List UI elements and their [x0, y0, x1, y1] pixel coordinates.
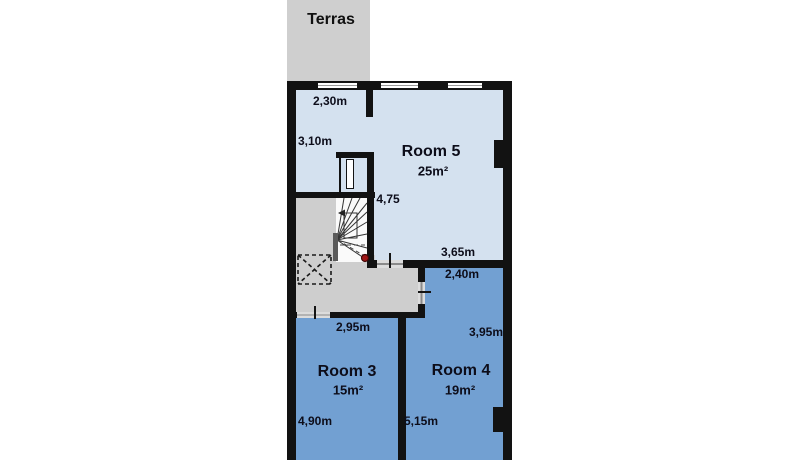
room4-name: Room 4	[432, 363, 491, 379]
room5-dim-left: 3,10m	[298, 135, 332, 147]
room5-area: 25m²	[418, 165, 448, 178]
room5-dim-stair: 4,75	[376, 193, 399, 205]
room3-name: Room 3	[318, 364, 377, 380]
room3-dim-left: 4,90m	[298, 415, 332, 427]
room5-name: Room 5	[402, 144, 461, 160]
room5-dim-top: 2,30m	[313, 95, 347, 107]
room4-dim-top: 2,40m	[445, 268, 479, 280]
red-dot-marker-icon	[362, 255, 369, 262]
winder-staircase	[337, 198, 367, 260]
room4-area: 19m²	[445, 384, 475, 397]
dashed-void-box	[298, 255, 331, 284]
room4-dim-right: 3,95m	[469, 326, 503, 338]
stair-newel-post	[333, 233, 338, 261]
room4-dim-left: 5,15m	[404, 415, 438, 427]
room3-area: 15m²	[333, 384, 363, 397]
plan-details-layer	[0, 0, 800, 460]
room3-dim-top: 2,95m	[336, 321, 370, 333]
room5-dim-bottom: 3,65m	[441, 246, 475, 258]
floorplan-canvas: Terras	[0, 0, 800, 460]
